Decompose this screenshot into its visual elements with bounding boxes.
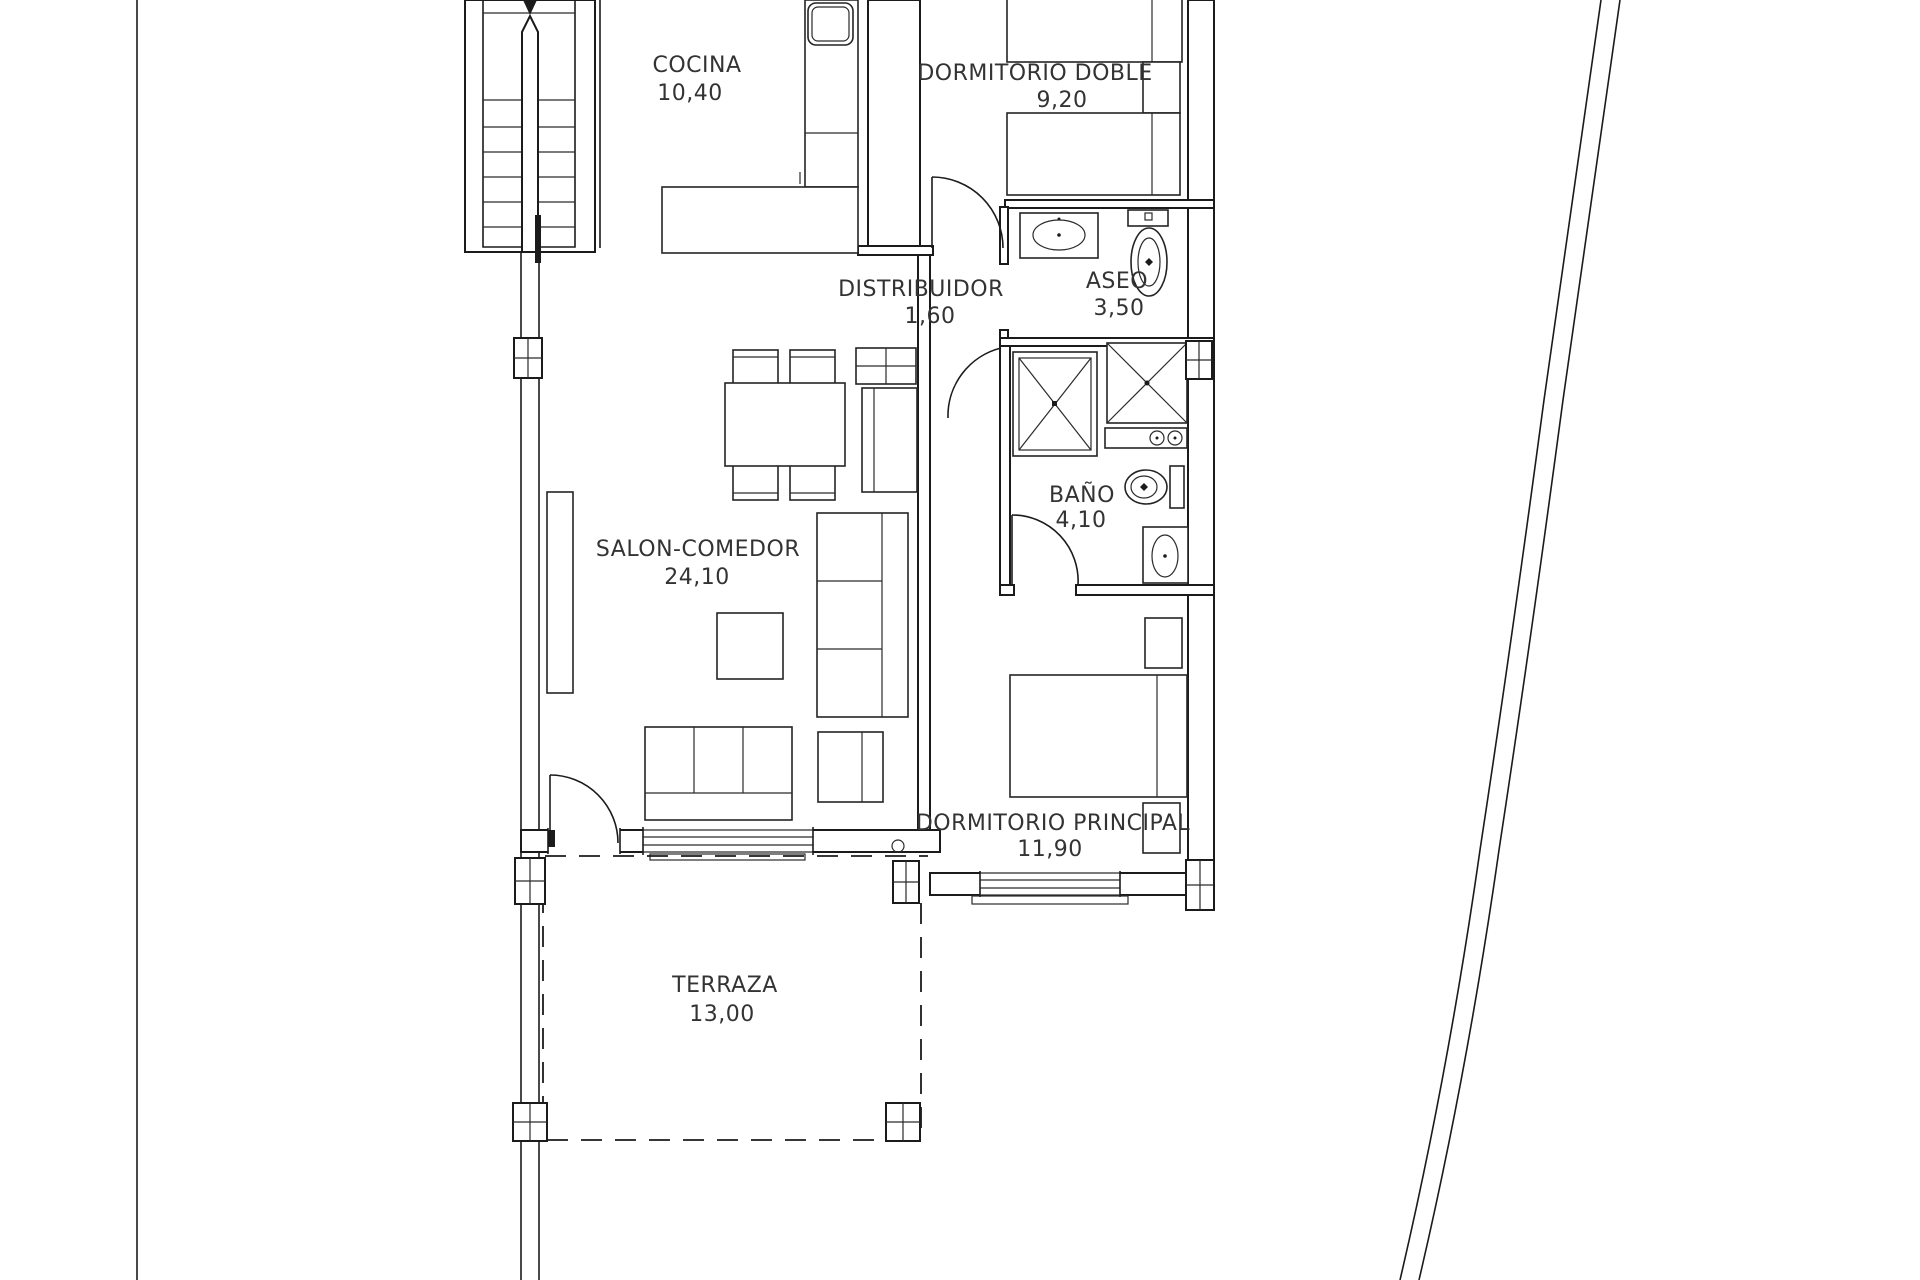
room-label-cocina: COCINA: [652, 53, 741, 78]
room-label-aseo: ASEO: [1086, 269, 1148, 294]
room-label-distribuidor: DISTRIBUIDOR: [838, 277, 1004, 302]
floorplan-canvas: COCINA 10,40 DORMITORIO DOBLE 9,20 DISTR…: [0, 0, 1920, 1280]
column: [1186, 341, 1212, 379]
bano-washbasin: [1143, 527, 1188, 583]
sofa-two-seat: [645, 727, 792, 820]
door-dormitorio-principal: [948, 348, 1001, 418]
kitchen-sink: [808, 3, 853, 45]
room-area-cocina: 10,40: [657, 81, 722, 106]
room-label-bano: BAÑO: [1049, 481, 1115, 508]
nightstand-principal-top: [1145, 618, 1182, 668]
room-area-dormitorio-doble: 9,20: [1037, 88, 1088, 113]
entrance-door: [548, 775, 620, 854]
room-label-dormitorio-doble: DORMITORIO DOBLE: [917, 61, 1152, 86]
coffee-table: [717, 613, 783, 679]
sofa-three-seat: [817, 513, 908, 717]
room-label-terraza: TERRAZA: [671, 973, 778, 998]
room-area-dormitorio-principal: 11,90: [1017, 837, 1082, 862]
bed-single-1: [1007, 0, 1182, 62]
room-label-salon-comedor: SALON-COMEDOR: [596, 537, 800, 562]
room-area-salon-comedor: 24,10: [664, 565, 729, 590]
room-area-terraza: 13,00: [689, 1002, 754, 1027]
road-boundary-curve: [1400, 0, 1620, 1280]
bano-counter: [1105, 428, 1187, 448]
column: [514, 338, 542, 378]
floorplan-drawing: COCINA 10,40 DORMITORIO DOBLE 9,20 DISTR…: [0, 0, 1920, 1280]
shower-tray-small: [1107, 343, 1187, 423]
room-area-aseo: 3,50: [1094, 296, 1145, 321]
shower-tray-large: [1013, 352, 1097, 456]
window-dormitorio-principal: [972, 871, 1128, 904]
door-dormitorio-doble: [932, 177, 1003, 248]
bed-double: [1010, 675, 1187, 797]
bano-toilet: [1125, 466, 1184, 508]
armchair: [818, 732, 883, 802]
column: [893, 861, 919, 903]
column: [515, 858, 545, 904]
dining-table: [725, 383, 845, 466]
aseo-washbasin: [1020, 213, 1098, 258]
column: [513, 1103, 547, 1141]
sideboard: [547, 492, 573, 693]
column: [1186, 860, 1214, 910]
terraza-boundary: [543, 856, 928, 1140]
room-label-dormitorio-principal: DORMITORIO PRINCIPAL: [916, 811, 1191, 836]
bed-single-2: [1007, 113, 1180, 195]
room-area-bano: 4,10: [1056, 508, 1107, 533]
staircase: [465, 0, 595, 263]
room-area-distribuidor: 1,60: [905, 304, 956, 329]
shelf-unit: [856, 348, 917, 492]
column: [886, 1103, 920, 1141]
